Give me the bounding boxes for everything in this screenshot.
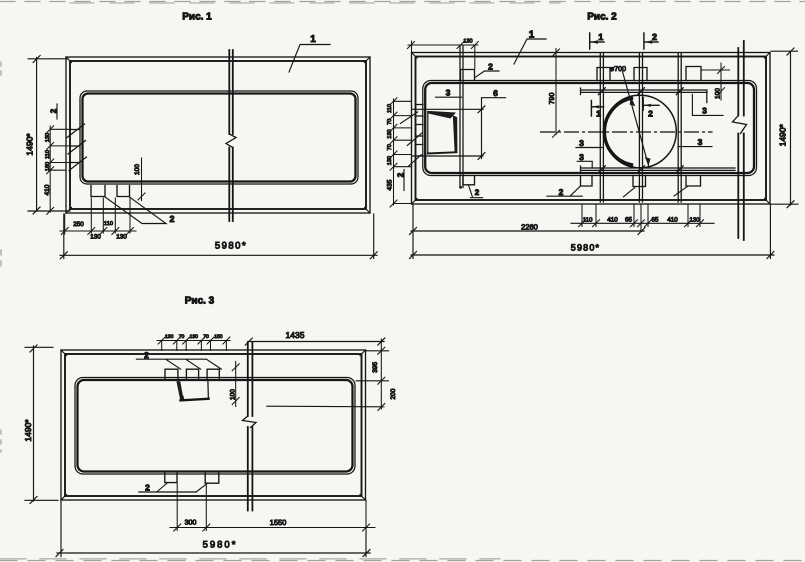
svg-text:2: 2: [652, 32, 657, 42]
svg-text:150: 150: [214, 334, 223, 340]
svg-text:2260: 2260: [521, 223, 538, 232]
svg-text:200: 200: [390, 388, 397, 399]
svg-text:130: 130: [387, 129, 393, 138]
svg-text:Рис. 3: Рис. 3: [185, 296, 215, 307]
svg-text:130: 130: [116, 234, 127, 241]
svg-text:70: 70: [387, 144, 393, 150]
svg-text:3: 3: [702, 105, 707, 115]
svg-text:790: 790: [549, 93, 556, 105]
svg-text:1550: 1550: [270, 518, 287, 527]
svg-text:2: 2: [145, 482, 150, 492]
svg-text:100: 100: [134, 164, 141, 175]
svg-text:180: 180: [45, 162, 51, 171]
svg-text:Рис. 2: Рис. 2: [587, 12, 617, 23]
svg-text:300: 300: [185, 520, 197, 527]
svg-text:1490*: 1490*: [778, 124, 788, 147]
svg-text:ø700: ø700: [610, 66, 626, 73]
svg-text:395: 395: [372, 361, 379, 372]
svg-text:3: 3: [579, 152, 584, 162]
svg-text:100: 100: [715, 88, 722, 99]
svg-text:110: 110: [583, 216, 593, 223]
svg-text:1: 1: [596, 109, 601, 119]
svg-text:2: 2: [488, 62, 493, 72]
svg-text:250: 250: [73, 221, 84, 228]
svg-text:130: 130: [689, 217, 700, 224]
svg-text:1: 1: [529, 30, 535, 41]
svg-text:100: 100: [230, 389, 237, 400]
svg-text:1490*: 1490*: [25, 133, 35, 156]
svg-text:435: 435: [387, 179, 394, 190]
svg-text:2: 2: [144, 350, 149, 360]
svg-text:1: 1: [598, 32, 603, 42]
svg-text:5980*: 5980*: [203, 540, 238, 551]
svg-text:410: 410: [607, 216, 618, 223]
svg-text:130: 130: [463, 39, 472, 45]
svg-text:410: 410: [44, 184, 51, 195]
svg-text:110: 110: [104, 221, 113, 227]
svg-text:2: 2: [169, 214, 174, 224]
svg-text:130: 130: [387, 156, 393, 165]
svg-text:2: 2: [648, 109, 653, 119]
svg-text:3: 3: [446, 88, 451, 98]
svg-text:3: 3: [579, 138, 584, 148]
svg-text:130: 130: [90, 234, 101, 241]
svg-text:130: 130: [45, 133, 51, 142]
svg-text:70: 70: [179, 334, 185, 340]
svg-text:6: 6: [493, 88, 498, 98]
svg-text:1435: 1435: [286, 330, 305, 340]
svg-text:110: 110: [45, 150, 51, 159]
svg-text:Рис. 1: Рис. 1: [182, 12, 212, 23]
svg-text:410: 410: [667, 216, 678, 223]
svg-text:5980*: 5980*: [215, 241, 247, 252]
svg-text:65: 65: [625, 216, 633, 223]
svg-text:70: 70: [203, 334, 209, 340]
svg-text:65: 65: [651, 216, 659, 223]
svg-text:110: 110: [387, 104, 393, 113]
svg-text:1: 1: [310, 34, 316, 45]
svg-text:130: 130: [165, 334, 174, 340]
svg-text:70: 70: [387, 119, 393, 125]
svg-text:5980*: 5980*: [571, 243, 601, 253]
svg-text:130: 130: [190, 334, 199, 340]
svg-text:2: 2: [559, 187, 564, 197]
svg-text:3: 3: [698, 137, 703, 147]
svg-text:1490*: 1490*: [23, 419, 33, 442]
svg-text:2: 2: [475, 188, 480, 197]
